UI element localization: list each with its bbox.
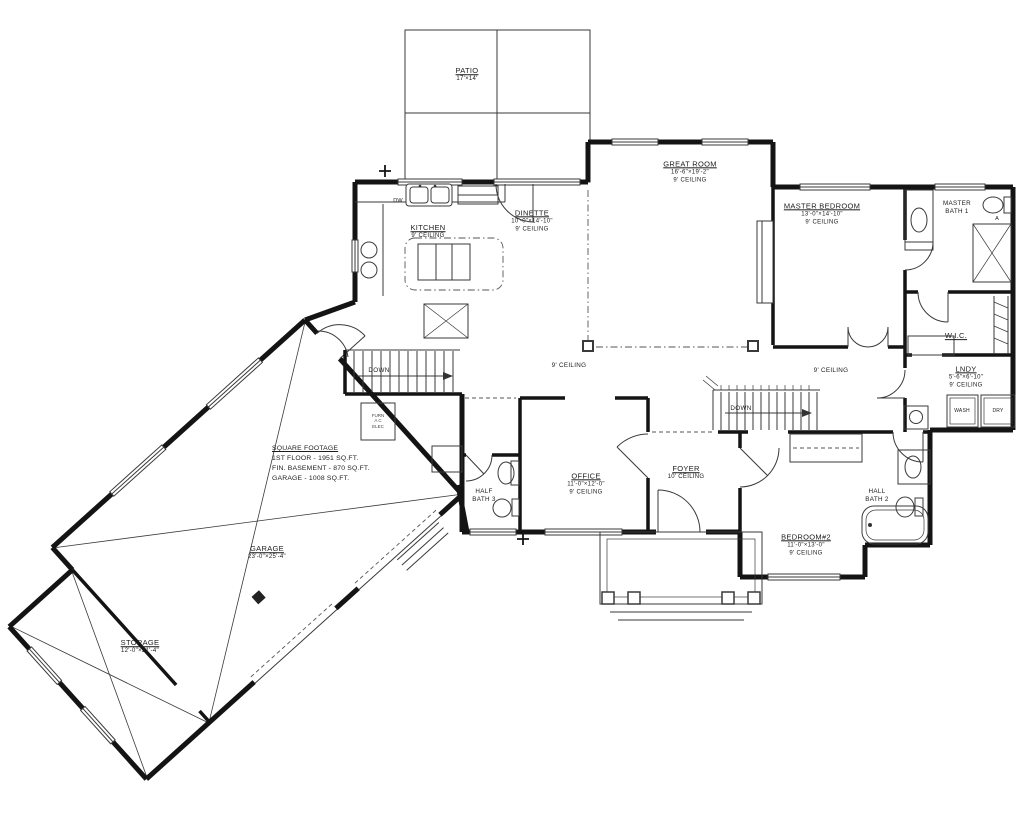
room-label-kitchen: KITCHEN 9' CEILING bbox=[410, 223, 445, 241]
floor-drain bbox=[252, 590, 266, 604]
doors bbox=[466, 184, 948, 532]
room-label-hall-bath: HALL BATH 2 bbox=[865, 488, 888, 504]
down-label-right: DOWN bbox=[730, 405, 751, 413]
stairs-right bbox=[703, 376, 820, 430]
dishwasher-label: DW bbox=[393, 198, 403, 204]
hall-ceiling-label-right: 9' CEILING bbox=[814, 367, 849, 375]
bedroom2-closet bbox=[790, 434, 862, 462]
square-footage-note: SQUARE FOOTAGE 1ST FLOOR - 1951 SQ.FT. F… bbox=[272, 444, 370, 483]
laundry-sink bbox=[904, 406, 928, 429]
wic-fixtures bbox=[908, 296, 1008, 355]
room-label-half-bath: HALF BATH 3 bbox=[472, 488, 495, 504]
room-label-dinette: DINETTE 10'-0"×14'-10" 9' CEILING bbox=[511, 208, 553, 233]
down-label-left: DOWN bbox=[368, 367, 389, 375]
hall-bath-sink bbox=[905, 456, 921, 478]
room-label-foyer: FOYER 10' CEILING bbox=[668, 464, 705, 482]
floor-plan: PATIO 17'×14' GREAT ROOM 16'-6"×19'-2" 9… bbox=[0, 0, 1024, 819]
hose-bib-icon bbox=[379, 165, 391, 177]
door-tag: A bbox=[995, 216, 999, 222]
master-bath-toilet bbox=[983, 197, 1003, 213]
floor-plan-drawing bbox=[0, 0, 1024, 819]
misc bbox=[318, 165, 529, 545]
room-label-wic: W.I.C. bbox=[945, 331, 967, 341]
kitchen-island bbox=[405, 238, 503, 290]
master-bath-sink bbox=[911, 208, 927, 232]
patio-outline bbox=[405, 30, 590, 182]
mechanical-label: FURN A C ELEC bbox=[372, 413, 385, 429]
half-bath-fixtures bbox=[493, 461, 519, 517]
kitchen-fixtures bbox=[355, 184, 505, 338]
room-label-bedroom2: BEDROOM#2 11'-0"×13'-0" 9' CEILING bbox=[781, 532, 831, 557]
hall-ceiling-label-left: 9' CEILING bbox=[552, 362, 587, 370]
room-label-laundry: LNDY 5'-6"×6'-10" 9' CEILING bbox=[949, 364, 983, 389]
room-label-master-bath: MASTER BATH 1 bbox=[943, 200, 971, 216]
room-label-garage: GARAGE 23'-0"×25'-4" bbox=[248, 544, 286, 562]
room-label-master-bedroom: MASTER BEDROOM 13'-0"×14'-10" 9' CEILING bbox=[784, 201, 860, 226]
room-label-office: OFFICE 11'-0"×12'-0" 9' CEILING bbox=[567, 471, 605, 496]
hall-bath-toilet bbox=[896, 497, 914, 517]
room-label-great-room: GREAT ROOM 16'-6"×19'-2" 9' CEILING bbox=[663, 159, 717, 184]
room-label-storage: STORAGE 12'-0"×21'-4" bbox=[121, 638, 160, 656]
dryer-label: DRY bbox=[992, 408, 1003, 414]
washer-label: WASH bbox=[954, 408, 970, 414]
half-bath-sink bbox=[498, 462, 514, 484]
hose-bib-icon bbox=[517, 533, 529, 545]
room-label-patio: PATIO 17'×14' bbox=[456, 66, 479, 84]
